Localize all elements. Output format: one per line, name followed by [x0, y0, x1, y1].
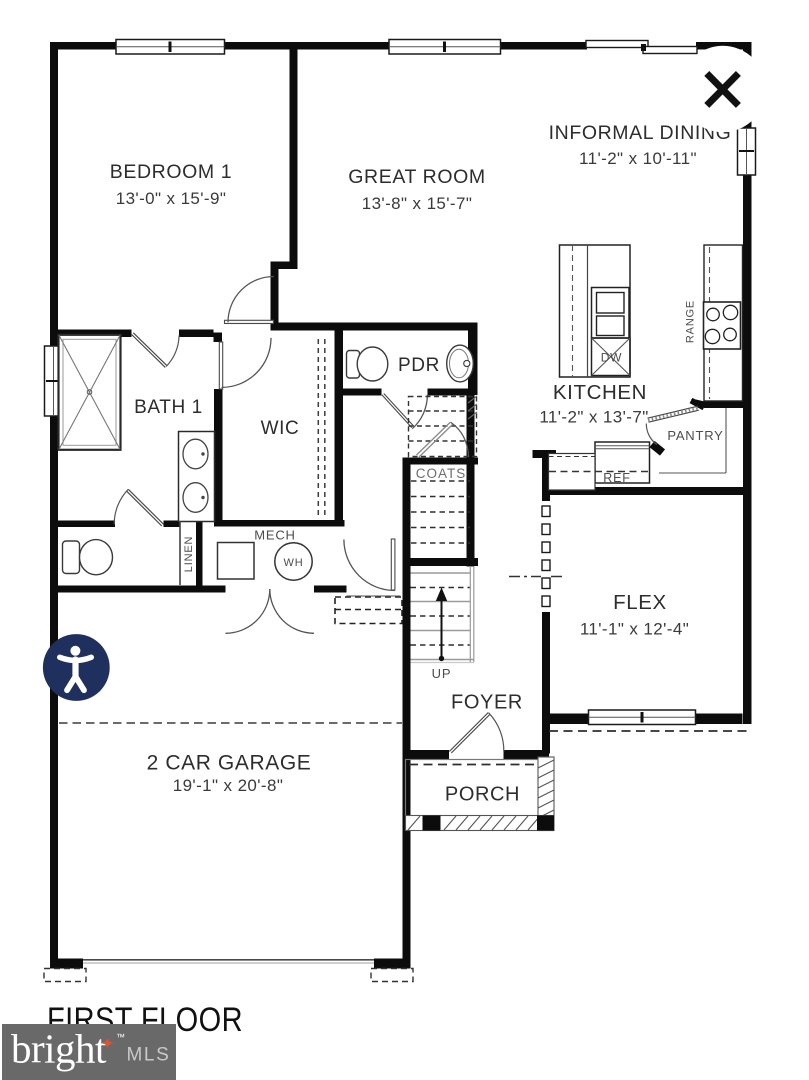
svg-text:2 CAR GARAGE: 2 CAR GARAGE	[147, 752, 312, 775]
svg-text:bright: bright	[11, 1026, 107, 1072]
svg-text:LINEN: LINEN	[183, 536, 195, 572]
svg-text:MLS: MLS	[127, 1045, 171, 1066]
svg-text:PORCH: PORCH	[445, 784, 520, 806]
svg-text:KITCHEN: KITCHEN	[553, 381, 647, 404]
svg-text:UP: UP	[432, 666, 452, 681]
svg-text:RANGE: RANGE	[685, 300, 697, 343]
svg-text:19'-1" x 20'-8": 19'-1" x 20'-8"	[173, 776, 284, 795]
svg-text:MECH: MECH	[254, 528, 295, 543]
svg-text:13'-8" x 15'-7": 13'-8" x 15'-7"	[362, 194, 473, 213]
svg-text:BEDROOM 1: BEDROOM 1	[110, 161, 232, 183]
svg-text:COATS: COATS	[416, 466, 467, 481]
svg-text:WIC: WIC	[261, 418, 300, 439]
svg-text:GREAT ROOM: GREAT ROOM	[348, 166, 485, 188]
svg-text:DW: DW	[601, 351, 623, 365]
svg-text:FOYER: FOYER	[451, 692, 523, 714]
svg-text:BATH 1: BATH 1	[134, 397, 203, 418]
svg-text:WH: WH	[284, 557, 304, 569]
svg-text:11'-1" x 12'-4": 11'-1" x 12'-4"	[580, 620, 689, 639]
svg-text:PANTRY: PANTRY	[667, 428, 723, 443]
svg-text:PDR: PDR	[398, 355, 440, 376]
svg-text:FLEX: FLEX	[613, 591, 667, 614]
svg-text:13'-0" x 15'-9": 13'-0" x 15'-9"	[116, 189, 227, 208]
svg-text:11'-2" x 10'-11": 11'-2" x 10'-11"	[579, 149, 697, 168]
svg-text:™: ™	[116, 1032, 125, 1042]
svg-text:11'-2" x 13'-7": 11'-2" x 13'-7"	[539, 408, 648, 427]
svg-text:REF: REF	[603, 471, 630, 485]
